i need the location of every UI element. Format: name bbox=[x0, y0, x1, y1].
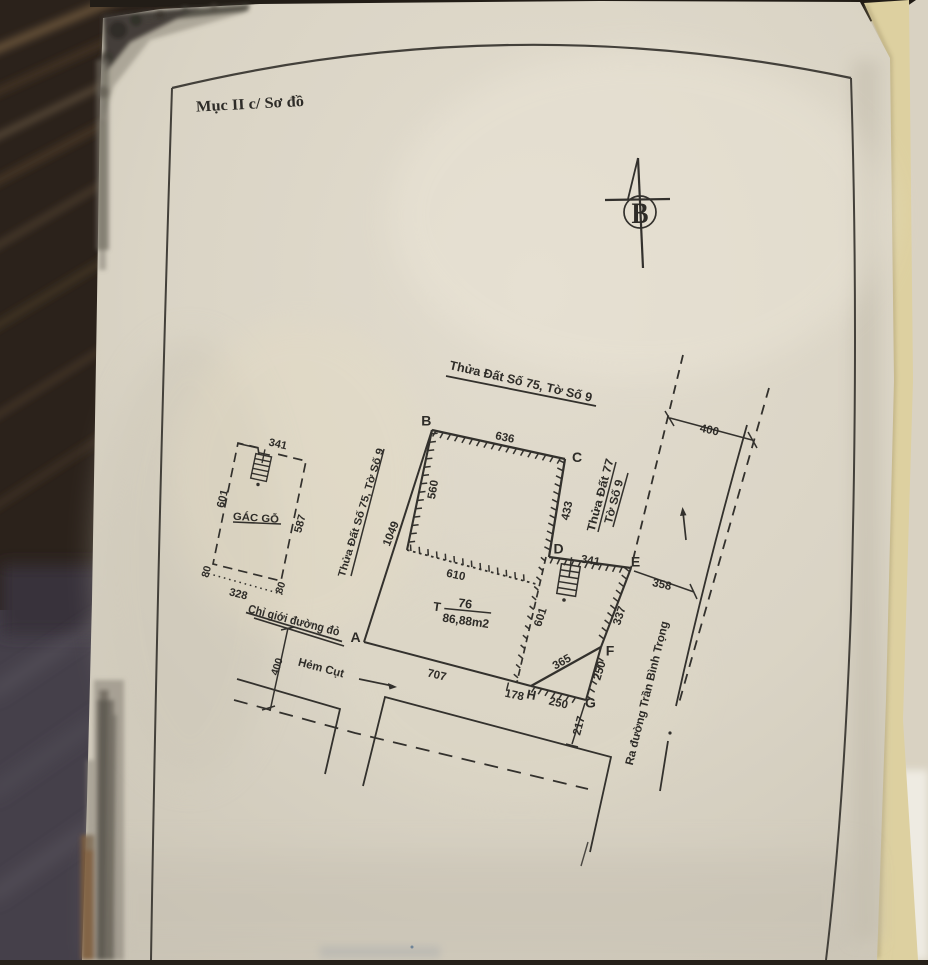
svg-text:B: B bbox=[421, 413, 431, 429]
svg-text:E: E bbox=[631, 554, 640, 570]
svg-text:C: C bbox=[572, 449, 582, 465]
svg-text:B: B bbox=[632, 197, 649, 230]
svg-text:A: A bbox=[350, 629, 360, 645]
svg-text:F: F bbox=[606, 643, 615, 659]
svg-text:D: D bbox=[553, 541, 563, 557]
